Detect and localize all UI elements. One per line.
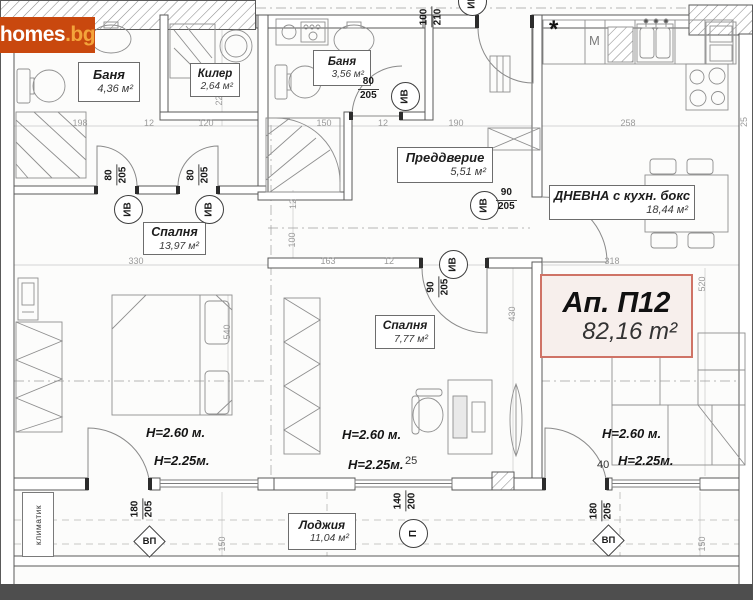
kitchen-m-label: M	[589, 33, 600, 48]
desk-icon	[448, 380, 492, 454]
door-height: 210	[431, 7, 445, 28]
door-width: 90	[499, 187, 514, 200]
room-label-bed1: Спалня 13,97 м²	[143, 222, 206, 255]
iv-label: ИВ	[448, 257, 459, 271]
loggia-lines	[14, 492, 739, 556]
door-tag-circle: ИВ	[114, 195, 143, 224]
room-name: Баня	[328, 56, 356, 69]
windows	[160, 480, 700, 487]
dim-number: 150	[312, 118, 336, 128]
room-area: 11,04 м²	[310, 532, 355, 544]
klimatik-label: климатик	[33, 504, 43, 544]
plant-icon	[510, 384, 522, 456]
room-name: Килер	[198, 68, 233, 81]
apartment-badge: Ап. П12 82,16 m²	[540, 274, 693, 358]
dim-number-vertical: 540	[221, 319, 233, 345]
window-width: 180	[588, 501, 601, 522]
homesbg-watermark: homes.bg	[0, 17, 95, 53]
window-tag-circle: П	[399, 519, 428, 548]
room-label-closet: Килер 2,64 м²	[190, 63, 240, 97]
dim-number: 12	[381, 256, 397, 266]
door-height: 205	[438, 277, 452, 298]
room-area: 4,36 м²	[97, 83, 139, 96]
corner-shower-icon	[266, 118, 340, 192]
dim-number-vertical: 100	[286, 227, 298, 253]
window-height: 205	[142, 499, 156, 520]
height-label: Н=2.25м.	[348, 457, 404, 472]
wardrobe2-icon	[284, 298, 320, 454]
door-width: 80	[361, 76, 376, 89]
dim-number: 12	[141, 118, 157, 128]
apartment-title: Ап. П12	[563, 288, 671, 318]
window-width: 180	[129, 499, 142, 520]
floor-plan: homes.bg Баня 4,36 м² Килер 2,64 м² Баня…	[0, 0, 753, 600]
door-width: 100	[418, 7, 431, 28]
kitchen-star-symbol: *	[549, 16, 558, 44]
dim-number: 258	[614, 118, 642, 128]
room-area: 13,97 м²	[159, 240, 205, 252]
door-height: 205	[198, 165, 212, 186]
hall-radiator-icon	[490, 56, 510, 92]
dim-number: 163	[316, 256, 340, 266]
room-name: Спалня	[151, 225, 197, 239]
door-size-tag: 100 210	[418, 7, 444, 28]
dim-number: 330	[122, 256, 150, 266]
vp-label: ВП	[597, 529, 620, 552]
door-width: 90	[425, 279, 438, 294]
office-chair-icon	[412, 389, 443, 434]
radiator-icon	[18, 278, 38, 320]
door-size-tag: 90 205	[496, 187, 517, 213]
bed-icon	[112, 295, 232, 415]
stove-icon	[686, 64, 728, 110]
door-width: 80	[185, 167, 198, 182]
room-label-bed2: Спалня 7,77 м²	[375, 315, 435, 349]
door-size-tag: 90 205	[425, 277, 451, 298]
window-height: 205	[601, 501, 615, 522]
room-label-hall: Преддверие 5,51 м²	[397, 147, 493, 183]
room-label-living: ДНЕВНА с кухн. бокс 18,44 м²	[549, 185, 695, 220]
p-label: П	[408, 530, 419, 537]
door-height: 205	[116, 165, 130, 186]
dim-number: 120	[194, 118, 218, 128]
room-area: 18,44 м²	[646, 204, 694, 217]
door-height: 205	[496, 200, 517, 214]
height-label: Н=2.60 м.	[146, 425, 205, 440]
dim-number-vertical: 12	[287, 191, 299, 217]
dim-number-vertical: 520	[696, 271, 708, 297]
dim-number-vertical: 25	[738, 109, 750, 135]
door-size-tag: 80 205	[358, 76, 379, 102]
iv-label: ИВ	[467, 0, 478, 9]
room-area: 5,51 м²	[450, 166, 492, 179]
room-name: Спалня	[383, 319, 428, 333]
door-tag-circle: ИВ	[391, 82, 420, 111]
height-label: Н=2.25м.	[618, 453, 674, 468]
room-name: Преддверие	[406, 151, 485, 166]
air-conditioner-box: климатик	[22, 492, 54, 557]
watermark-brand: homes	[0, 23, 65, 47]
door-height: 205	[358, 89, 379, 103]
dim-number-vertical: 150	[216, 531, 228, 557]
bottom-edge	[0, 584, 753, 600]
dim-number-vertical: 150	[696, 531, 708, 557]
dim-number: 12	[375, 118, 391, 128]
wardrobe-icon	[16, 322, 62, 432]
room-area: 2,64 м²	[201, 81, 239, 93]
room-name: ДНЕВНА с кухн. бокс	[554, 189, 690, 204]
dim-25: 25	[405, 455, 417, 467]
iv-label: ИВ	[400, 89, 411, 103]
window-width: 140	[392, 491, 405, 512]
dim-40: 40	[597, 459, 609, 471]
dim-number: 190	[444, 118, 468, 128]
door-tag-circle: ИВ	[195, 195, 224, 224]
door-tag-circle: ИВ	[439, 250, 468, 279]
height-label: Н=2.60 м.	[342, 427, 401, 442]
height-label: Н=2.60 м.	[602, 426, 661, 441]
door-tag-circle: ИВ	[470, 191, 499, 220]
window-height: 200	[405, 491, 419, 512]
window-size-tag: 140 200	[392, 491, 418, 512]
iv-label: ИВ	[204, 202, 215, 216]
iv-label: ИВ	[123, 202, 134, 216]
dim-number: 198	[66, 118, 94, 128]
door-size-tag: 80 205	[103, 165, 129, 186]
room-name: Баня	[93, 68, 125, 83]
room-label-bath1: Баня 4,36 м²	[78, 62, 140, 102]
balcony-door-tag-diamond: ВП	[597, 529, 620, 552]
dim-number-vertical: 430	[506, 301, 518, 327]
window-size-tag: 180 205	[588, 501, 614, 522]
door-size-tag: 80 205	[185, 165, 211, 186]
toilet-icon	[17, 69, 65, 103]
door-width: 80	[103, 167, 116, 182]
apartment-area: 82,16 m²	[582, 319, 691, 344]
height-label: Н=2.25м.	[154, 453, 210, 468]
window-size-tag: 180 205	[129, 499, 155, 520]
round-basin-icon	[220, 30, 252, 62]
room-area: 7,77 м²	[394, 333, 434, 345]
dim-number: 318	[598, 256, 626, 266]
balcony-door-tag-diamond: ВП	[138, 530, 161, 553]
iv-label: ИВ	[479, 198, 490, 212]
vp-label: ВП	[138, 530, 161, 553]
room-label-loggia: Лоджия 11,04 м²	[288, 513, 356, 550]
watermark-suffix: .bg	[65, 23, 95, 47]
room-name: Лоджия	[299, 519, 345, 533]
